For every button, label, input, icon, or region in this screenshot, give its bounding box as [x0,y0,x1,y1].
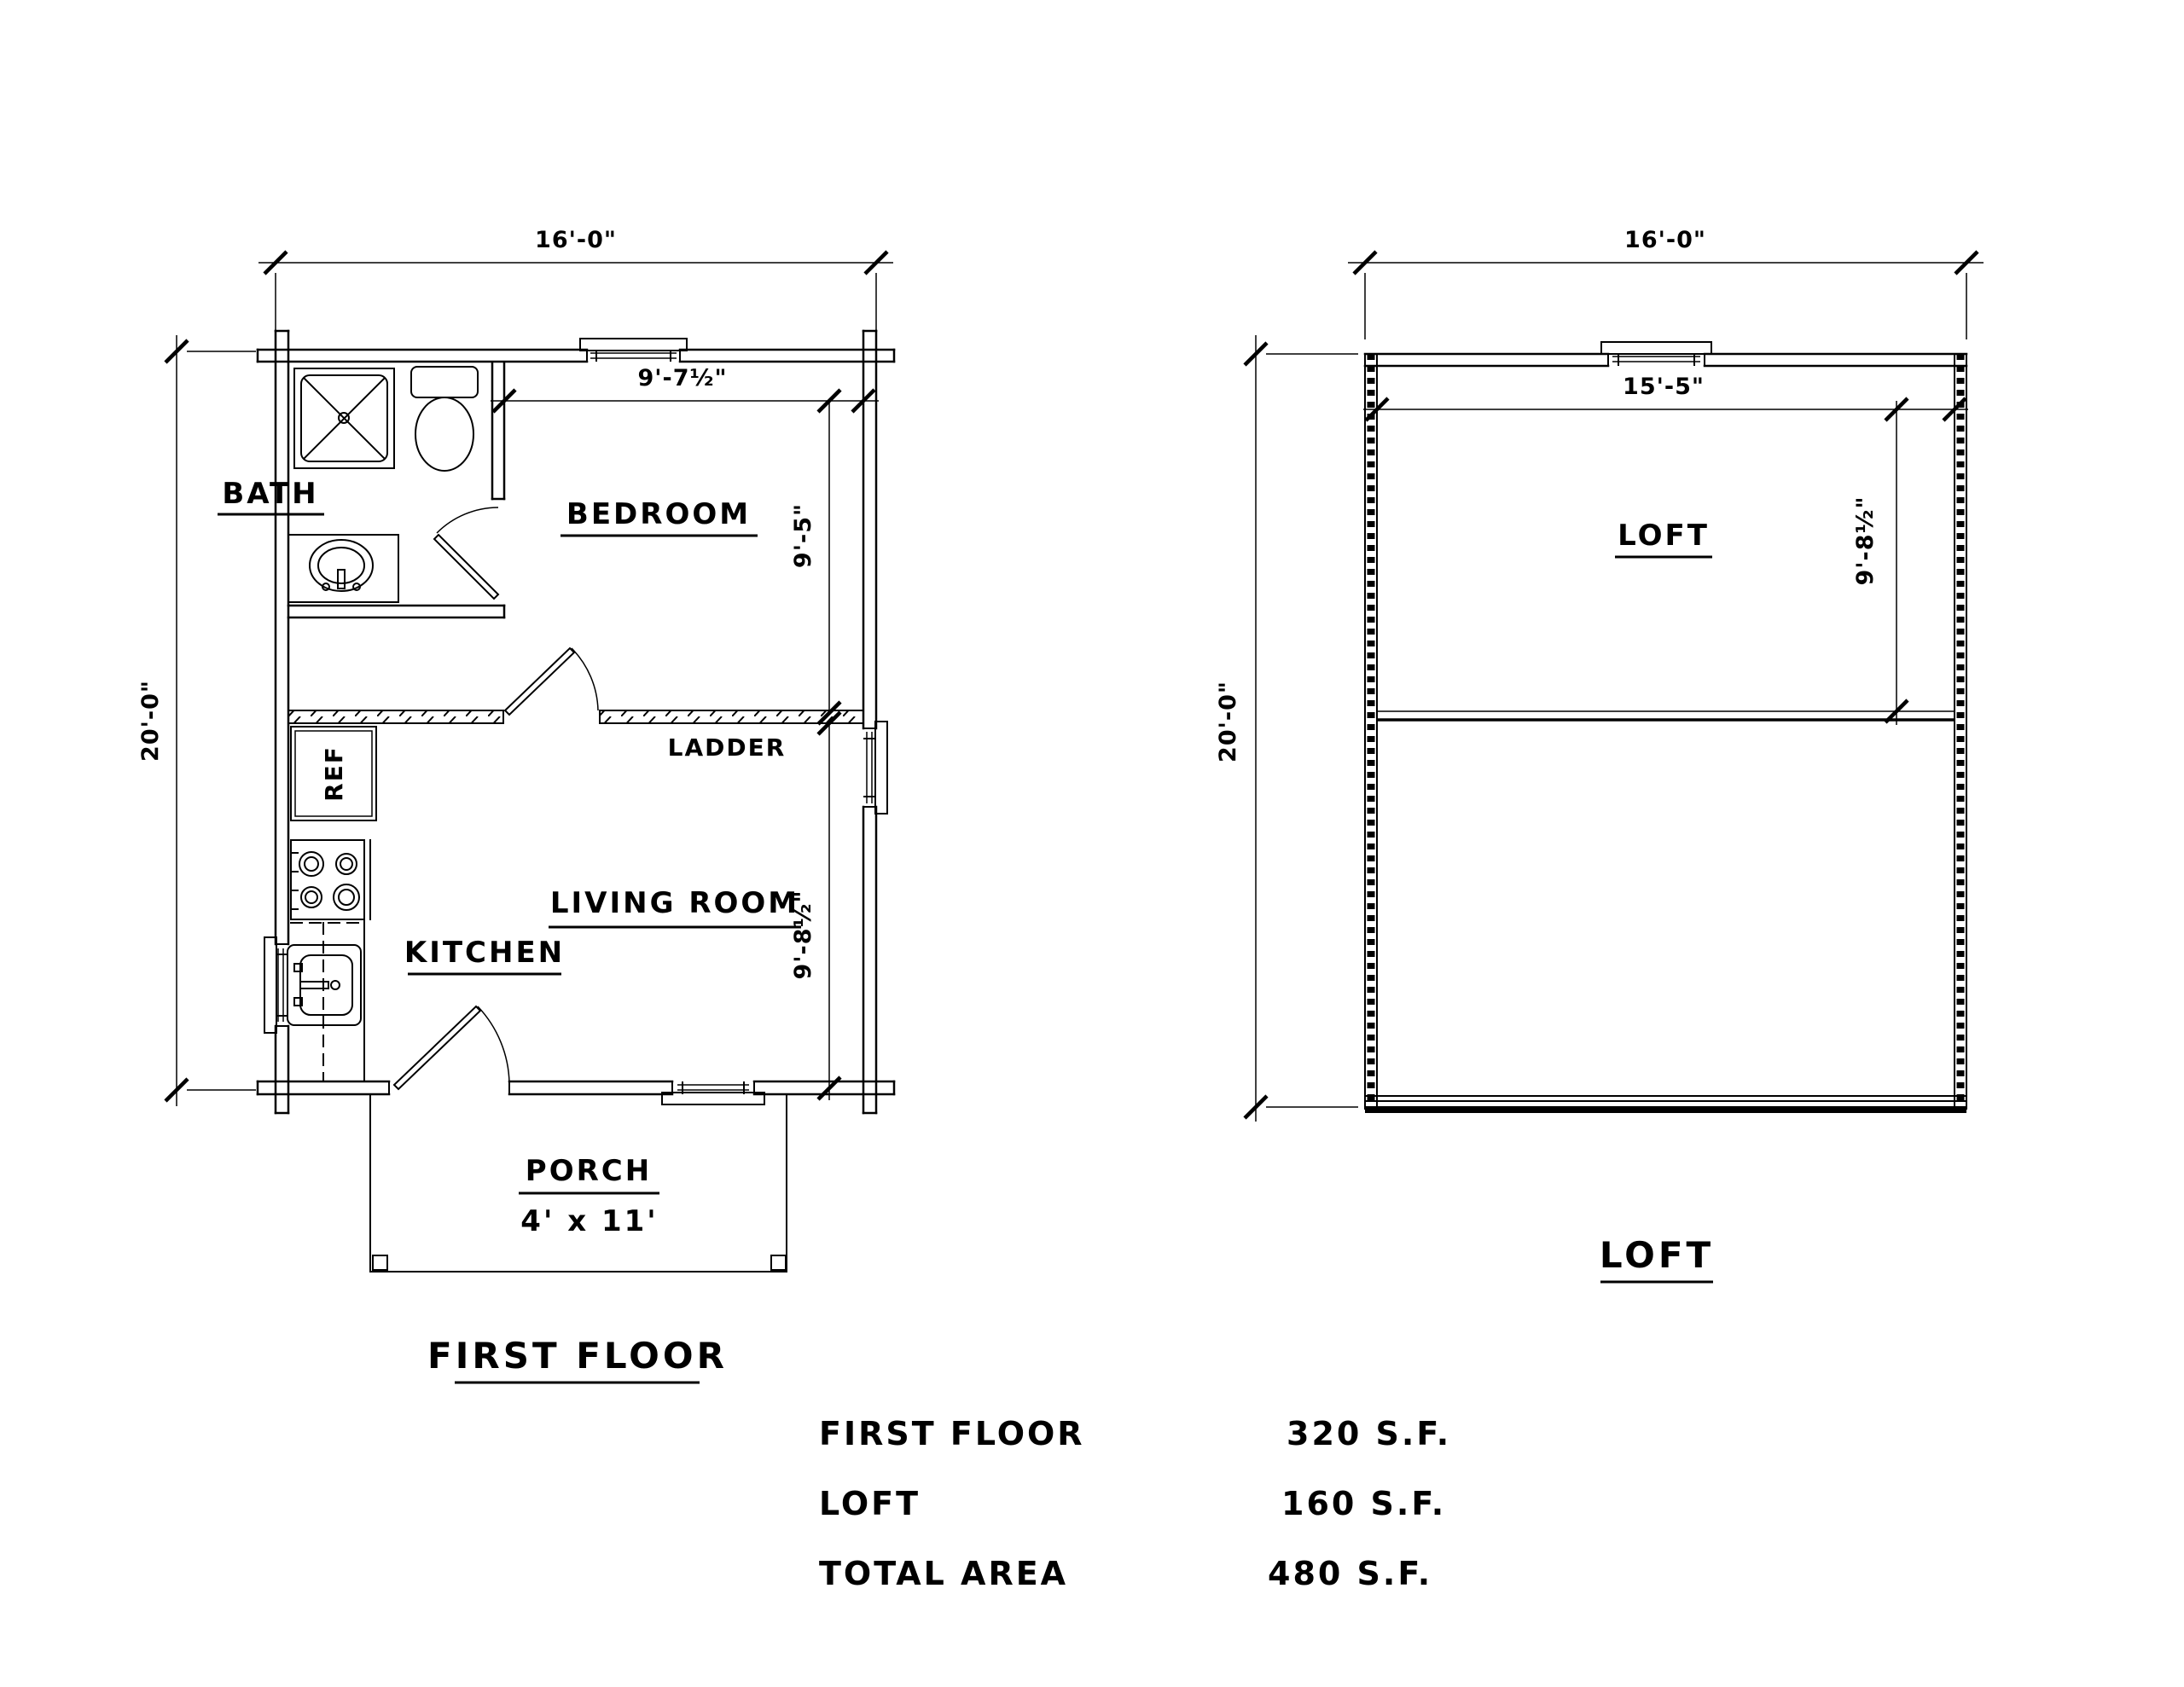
loft-dimension-width: 16'-0" [1348,227,1984,339]
summary-row-first-floor: FIRST FLOOR 320 S.F. [819,1415,1451,1452]
ff-dimension-bedroom-width: 9'-7½" [491,365,879,412]
summary-value: 320 S.F. [1287,1415,1451,1452]
loft-dimension-inner-width: 15'-5" [1363,368,1968,420]
loft-window-top [1601,342,1711,366]
area-summary-table: FIRST FLOOR 320 S.F. LOFT 160 S.F. TOTAL… [819,1415,1451,1592]
ladder-label: LADDER [668,733,787,762]
entry-door [394,1006,509,1089]
loft-exterior-walls [1365,354,1966,1110]
loft-dimension-upper-depth: 9'-8½" [1852,398,1908,725]
bedroom-door [505,648,598,715]
ff-window-bottom [662,1081,764,1104]
porch-label: PORCH [526,1154,652,1188]
loft-dimension-height: 20'-0" [1215,335,1358,1122]
loft-edge-hatched-wall [288,710,863,723]
summary-label: FIRST FLOOR [819,1415,1085,1452]
loft-railing [1377,711,1955,720]
ff-dimension-height: 20'-0" [137,335,256,1106]
summary-label: LOFT [819,1485,921,1522]
first-floor-title: FIRST FLOOR [427,1335,728,1377]
living-room-label: LIVING ROOM [550,886,799,920]
toilet [411,367,478,471]
ff-bath-walls [288,362,504,617]
summary-value: 160 S.F. [1281,1485,1446,1522]
loft-plan: 16'-0" 20'-0" [1215,227,1984,1282]
floor-plan-sheet: 16'-0" 20'-0" [0,0,2184,1687]
loft-dim-upper-depth-text: 9'-8½" [1852,496,1879,585]
ff-dimension-width: 16'-0" [258,227,893,334]
floor-plan-drawing: 16'-0" 20'-0" [0,0,2184,1687]
ff-dim-bedroom-width-text: 9'-7½" [637,365,727,391]
summary-value: 480 S.F. [1268,1555,1432,1592]
refrigerator: REF [291,727,376,820]
stove [291,840,370,919]
summary-row-loft: LOFT 160 S.F. [819,1485,1446,1522]
ref-label: REF [320,745,348,802]
bath-sink-vanity [288,535,398,602]
summary-label: TOTAL AREA [819,1555,1068,1592]
ff-dim-height-text: 20'-0" [137,680,164,762]
ff-dim-width-text: 16'-0" [535,227,617,253]
ff-dimension-bedroom-depth: 9'-5" [790,390,840,724]
ff-window-left [264,937,288,1033]
shower [294,368,394,468]
loft-dim-width-text: 16'-0" [1624,227,1706,253]
ff-window-top [580,339,687,362]
ff-window-right [863,722,887,814]
bedroom-label: BEDROOM [566,497,751,531]
loft-room-label: LOFT [1618,519,1710,553]
first-floor-plan: 16'-0" 20'-0" [137,227,894,1383]
loft-title: LOFT [1600,1234,1714,1276]
kitchen-label: KITCHEN [404,936,565,970]
porch-size-label: 4' x 11' [520,1204,658,1238]
bath-label: BATH [222,477,318,511]
loft-dim-inner-width-text: 15'-5" [1623,374,1705,400]
ff-dim-bedroom-depth-text: 9'-5" [790,503,816,568]
summary-row-total: TOTAL AREA 480 S.F. [819,1555,1432,1592]
bath-door [434,507,498,599]
loft-dim-height-text: 20'-0" [1215,681,1241,762]
